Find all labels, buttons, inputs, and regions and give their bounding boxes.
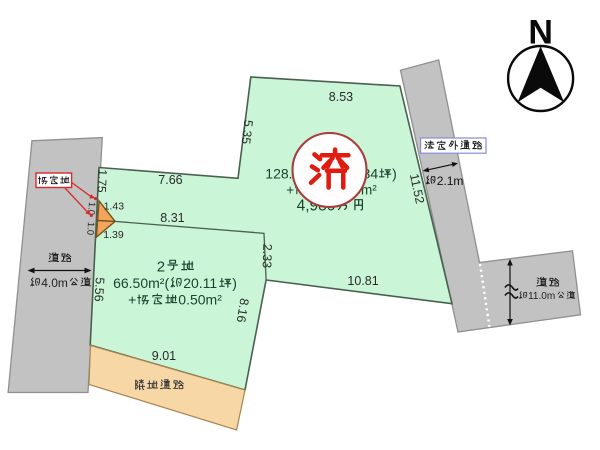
svg-text:1.75: 1.75	[95, 169, 110, 193]
svg-text:8.31: 8.31	[160, 211, 184, 225]
svg-text:+: +	[286, 182, 294, 197]
svg-text:10.81: 10.81	[347, 274, 378, 288]
svg-text:+: +	[128, 292, 136, 308]
svg-text:1.39: 1.39	[103, 229, 124, 241]
svg-text:8.53: 8.53	[329, 90, 353, 104]
svg-text:2.1m: 2.1m	[437, 174, 464, 188]
svg-text:11.0m: 11.0m	[528, 291, 555, 302]
svg-text:20.11: 20.11	[183, 275, 217, 291]
svg-text:7.66: 7.66	[158, 173, 182, 187]
svg-text:): )	[232, 275, 237, 291]
svg-text:5.56: 5.56	[92, 277, 107, 302]
svg-text:1.43: 1.43	[104, 201, 125, 213]
svg-text:): )	[392, 166, 397, 182]
svg-text:9.01: 9.01	[152, 349, 176, 363]
svg-text:0.50m²: 0.50m²	[178, 292, 222, 308]
svg-text:66.50m²(: 66.50m²(	[113, 275, 169, 291]
svg-text:2: 2	[157, 258, 165, 275]
svg-text:1.0: 1.0	[84, 222, 96, 236]
svg-text:2.33: 2.33	[260, 244, 275, 269]
svg-text:5.35: 5.35	[239, 119, 256, 145]
svg-text:4.0m: 4.0m	[41, 276, 68, 290]
